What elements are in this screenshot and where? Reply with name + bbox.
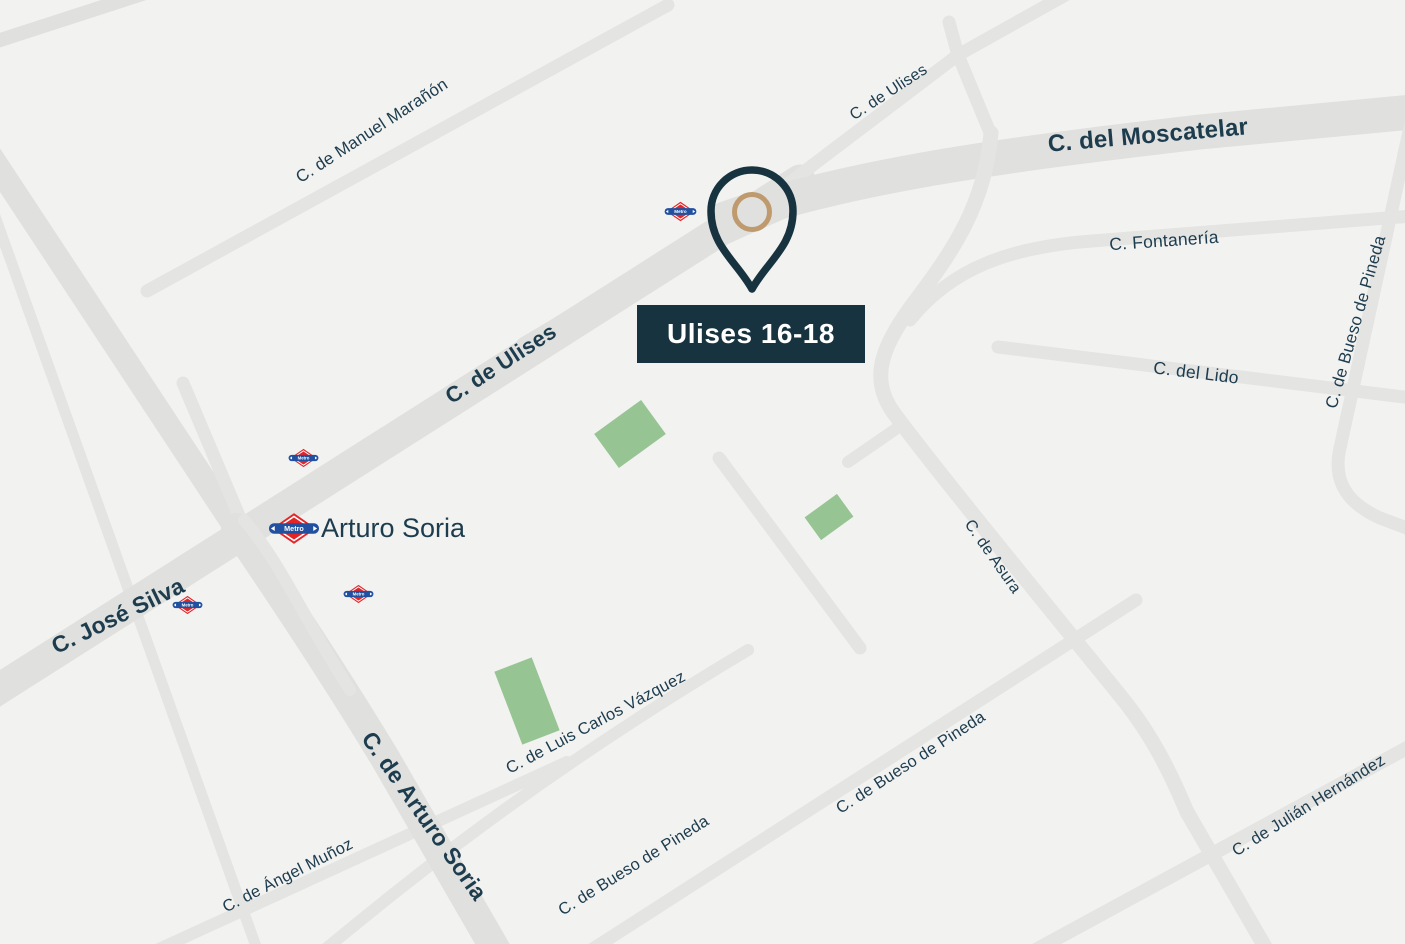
metro-icon[interactable]: Metro (172, 595, 203, 615)
station-label-arturo-soria: Arturo Soria (321, 513, 465, 544)
road-stub-center (719, 458, 860, 648)
road-manuel-maranon (147, 5, 668, 291)
park-area (594, 400, 666, 468)
park-area (805, 494, 854, 540)
road-corner-stub (0, 0, 170, 45)
metro-logo-text: Metro (182, 602, 194, 607)
metro-logo-text: Metro (353, 591, 365, 596)
road-thin-left (0, 208, 258, 944)
road-moscatelar (725, 112, 1405, 219)
metro-logo-text: Metro (298, 455, 310, 460)
metro-icon[interactable]: Metro (664, 201, 697, 222)
metro-icon[interactable]: Metro (288, 448, 319, 468)
road-stub-right (848, 424, 903, 462)
marker-address-label[interactable]: Ulises 16-18 (637, 305, 865, 363)
park-area (494, 657, 559, 744)
metro-logo-text: Metro (674, 209, 687, 214)
road-asura (881, 133, 1268, 944)
metro-icon[interactable]: Metro (343, 584, 374, 604)
metro-logo-text: Metro (284, 524, 304, 533)
map-canvas: C. de Manuel Marañón C. de Ulises C. del… (0, 0, 1405, 944)
road-arturo-soria-island (244, 520, 350, 690)
marker-address-text: Ulises 16-18 (667, 318, 835, 350)
metro-icon-arturo-soria[interactable]: Metro (268, 512, 320, 545)
